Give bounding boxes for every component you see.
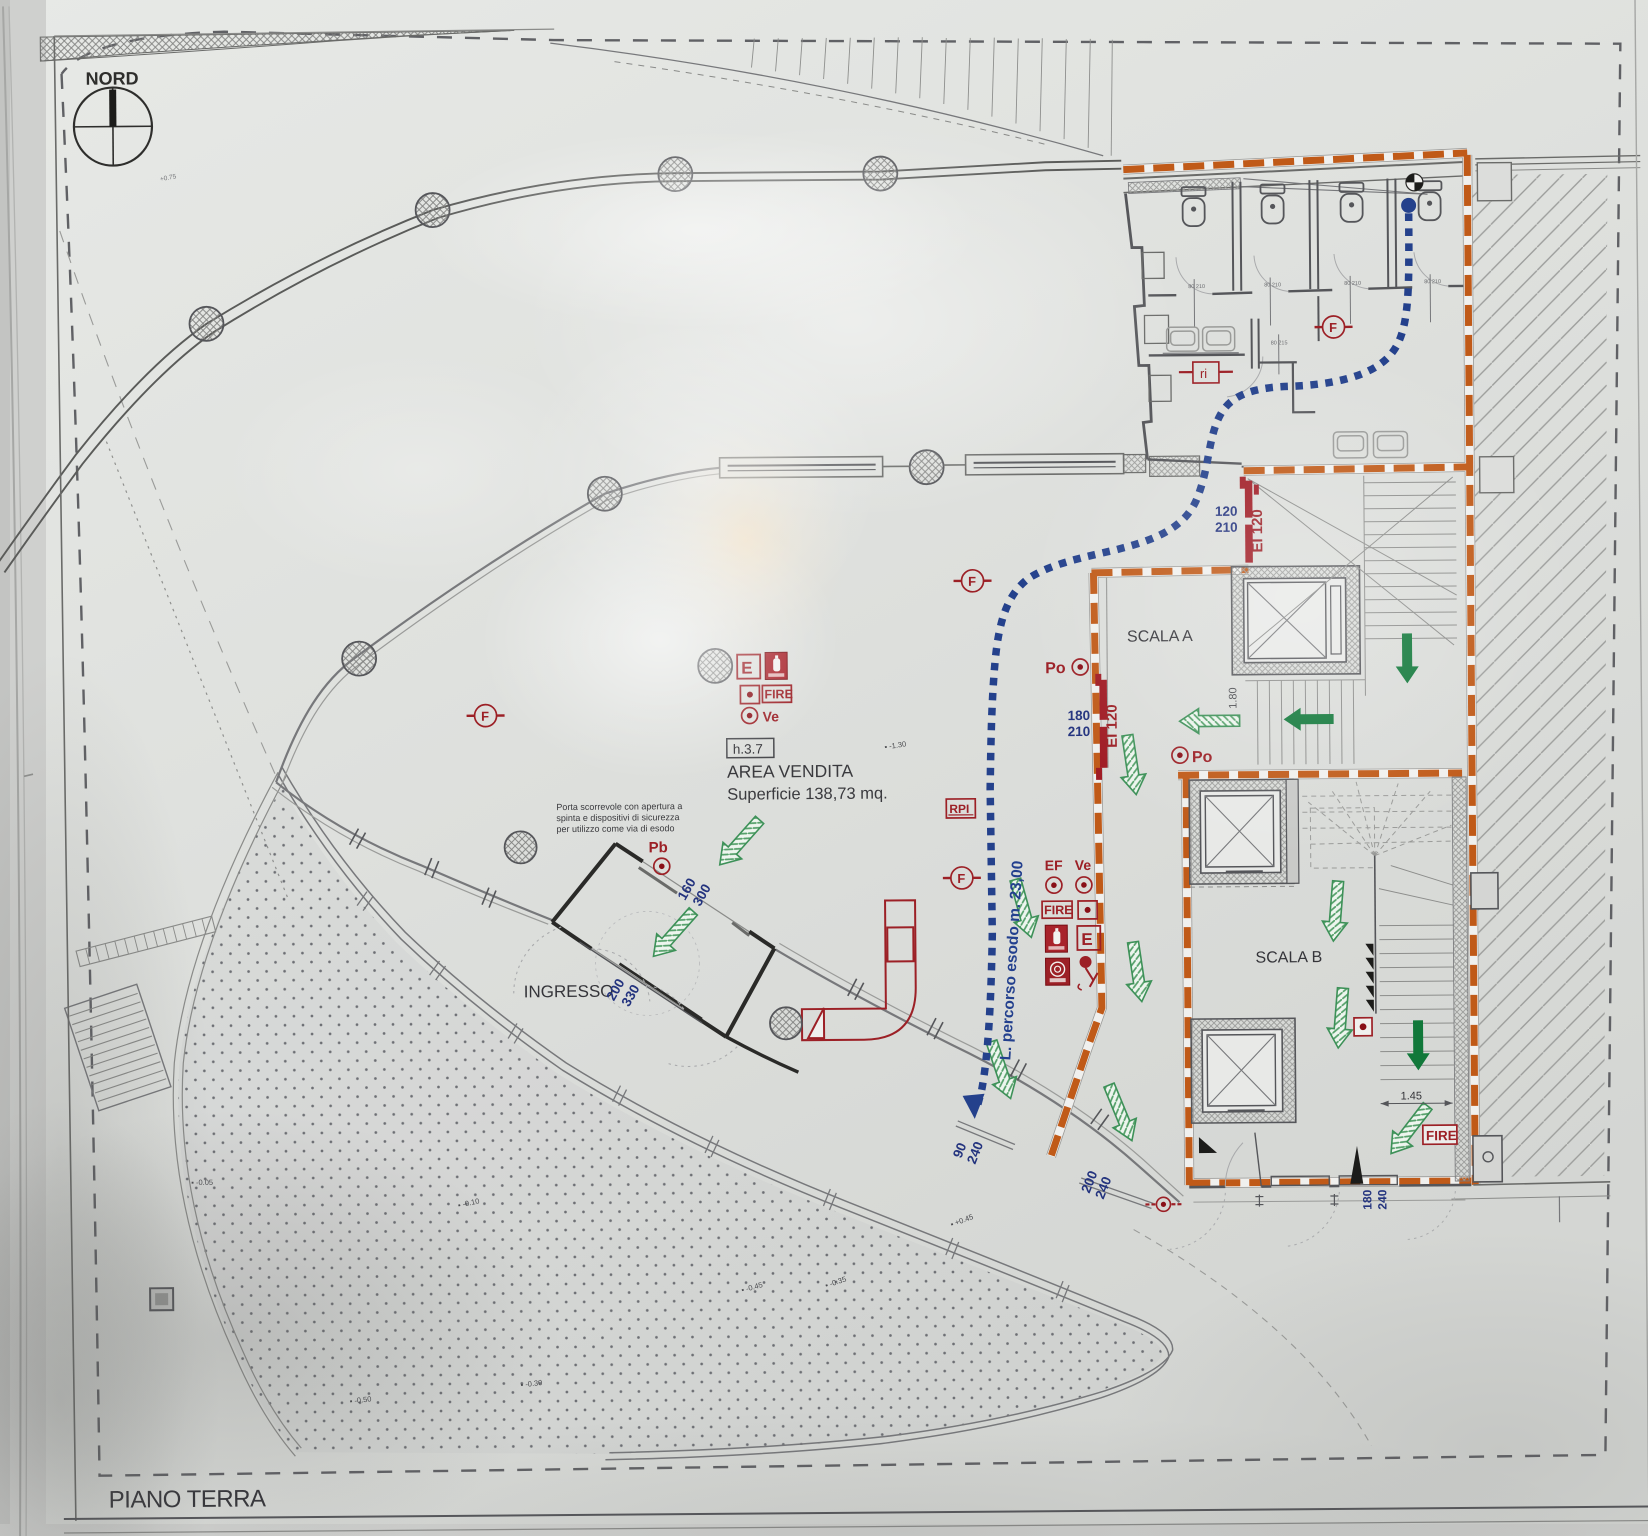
svg-text:F: F [957,871,965,886]
svg-text:INGRESSO: INGRESSO [524,982,614,1002]
svg-text:80 210: 80 210 [1264,282,1281,288]
svg-text:80 210: 80 210 [1188,284,1205,290]
svg-text:FIRE: FIRE [1426,1128,1457,1143]
svg-text:spinta e dispositivi di sicure: spinta e dispositivi di sicurezza [556,812,679,823]
svg-text:F: F [1329,320,1337,335]
svg-text:Ve: Ve [1075,857,1092,873]
svg-text:1.45: 1.45 [1401,1090,1423,1102]
svg-text:E: E [1081,930,1092,949]
svg-text:EF: EF [1045,857,1063,873]
svg-text:F: F [481,709,489,724]
svg-text:RPI: RPI [949,802,969,816]
svg-text:Superficie 138,73 mq.: Superficie 138,73 mq. [727,785,888,804]
svg-text:FIRE: FIRE [1044,903,1073,917]
svg-text:F: F [968,574,976,589]
svg-text:80 210: 80 210 [1424,279,1441,285]
svg-text:NORD: NORD [85,68,138,88]
svg-text:Porta scorrevole con apertura: Porta scorrevole con apertura a [556,801,682,812]
svg-text:per utilizzo come via di esodo: per utilizzo come via di esodo [556,823,674,834]
svg-text:80 210: 80 210 [1344,281,1361,287]
svg-text:AREA VENDITA: AREA VENDITA [727,761,854,782]
svg-text:240: 240 [1375,1189,1389,1209]
svg-text:SCALA B: SCALA B [1255,949,1322,967]
svg-text:180: 180 [1360,1189,1374,1209]
svg-text:Pb: Pb [649,839,668,856]
